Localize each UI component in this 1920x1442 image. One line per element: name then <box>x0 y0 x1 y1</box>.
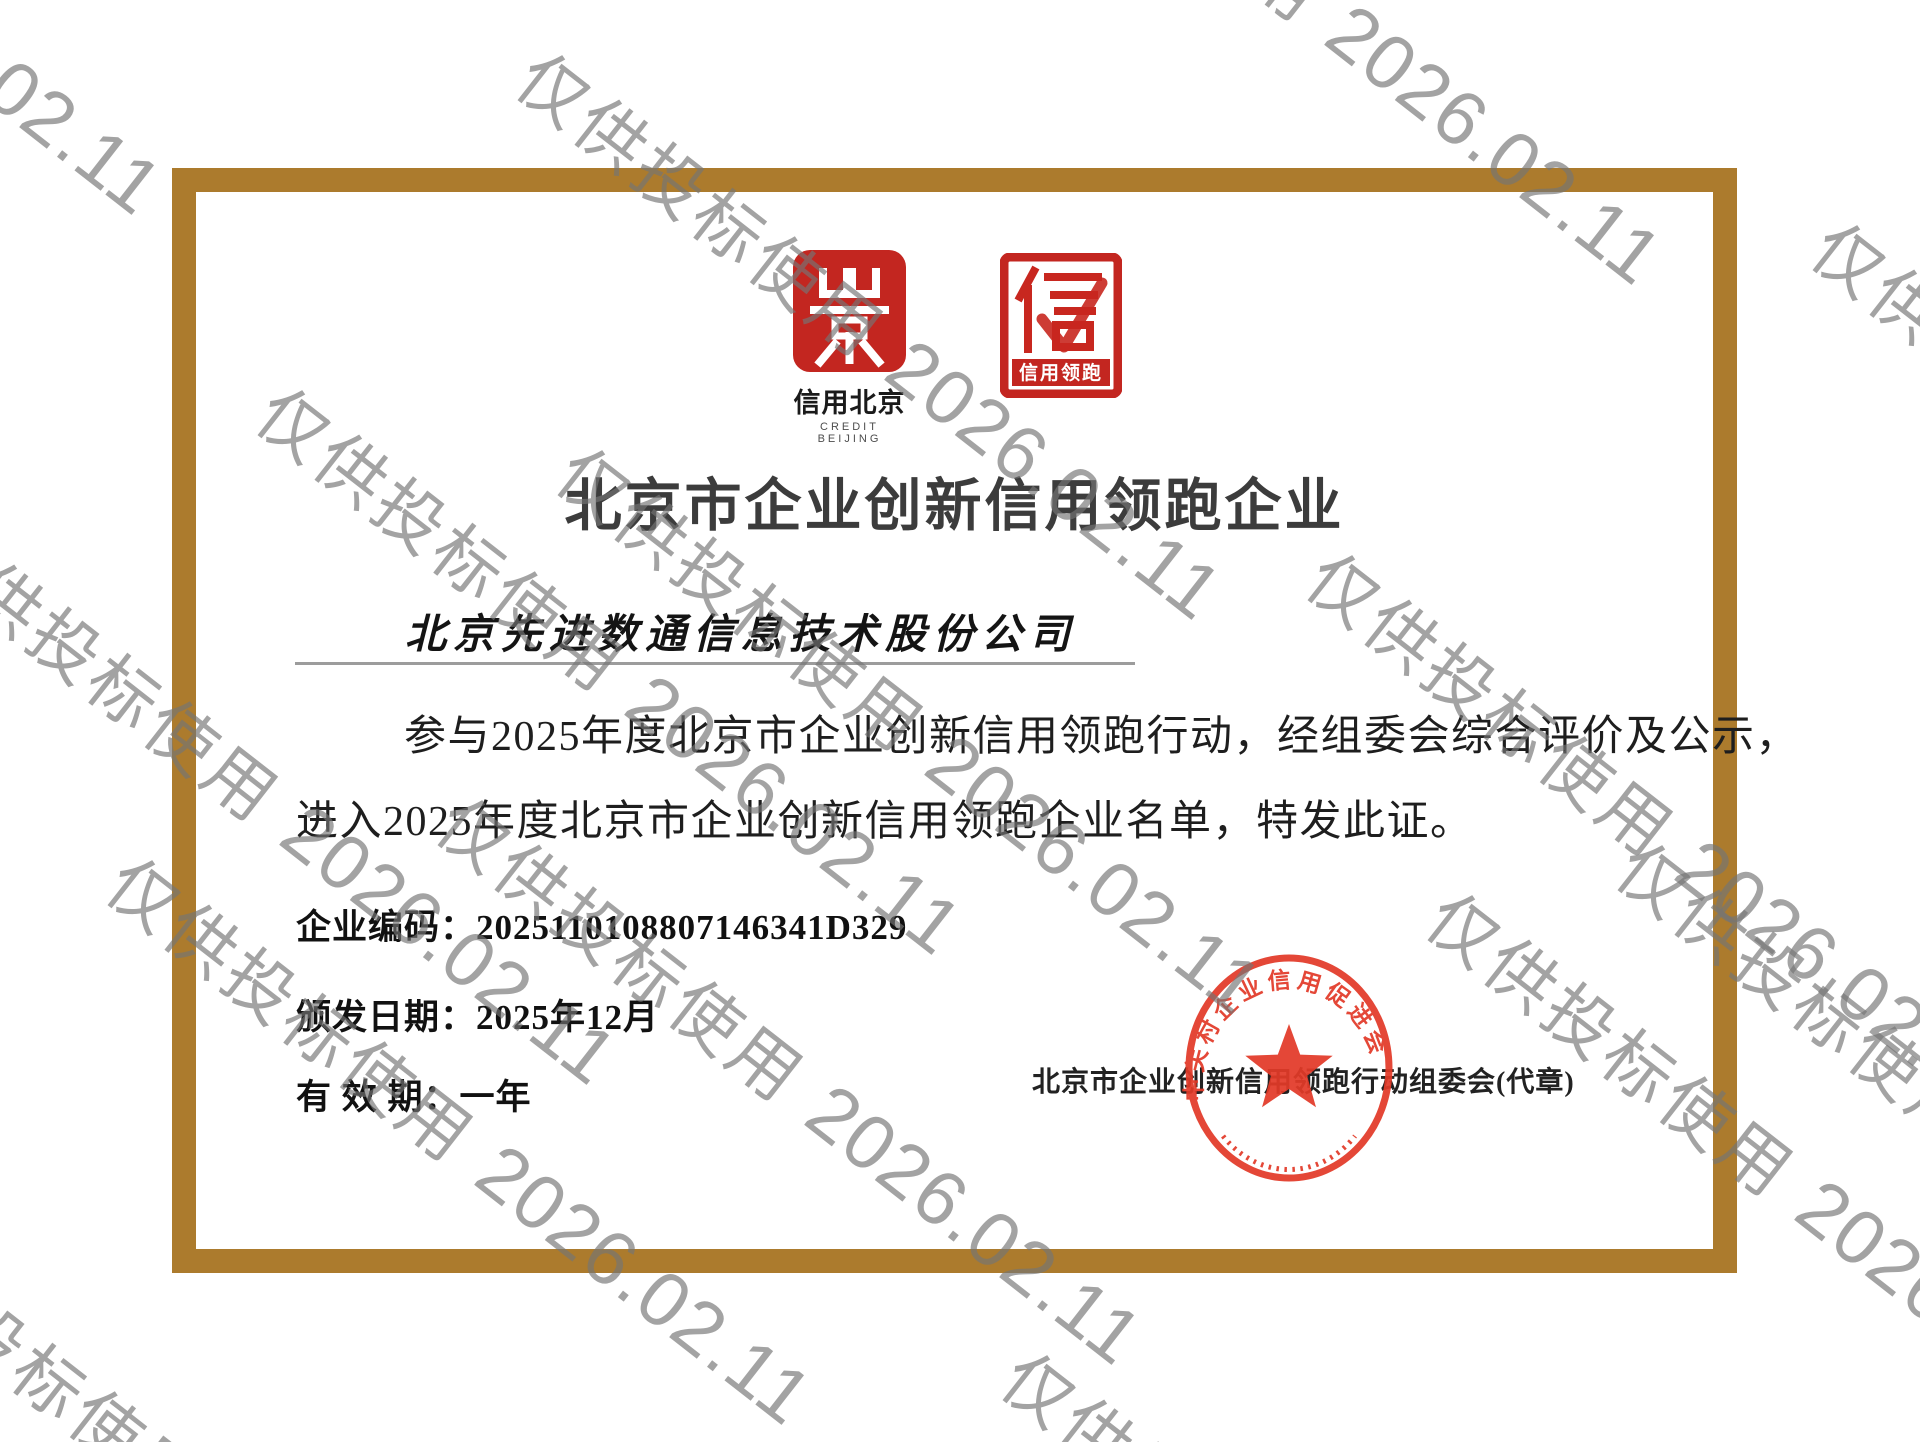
credit-leader-logo-icon: 信用领跑 <box>1000 253 1122 398</box>
credit-beijing-logo: 信用北京 CREDIT BEIJING <box>793 250 906 445</box>
body-text-line2: 进入2025年度北京市企业创新信用领跑企业名单，特发此证。 <box>296 787 1474 848</box>
field-issue-date-value: 2025年12月 <box>476 998 659 1037</box>
field-issue-date-label: 颁发日期： <box>296 998 476 1037</box>
official-seal: 中关村企业信用促进会 <box>1178 946 1400 1186</box>
field-enterprise-code-label: 企业编码： <box>296 908 476 947</box>
certificate-title: 北京市企业创新信用领跑企业 <box>172 460 1737 542</box>
field-enterprise-code-value: 2025110108807146341D329 <box>476 908 907 947</box>
seal-star-icon <box>1245 1024 1332 1107</box>
field-validity-value: 一年 <box>460 1078 532 1117</box>
watermark-text: 仅供投标使用2026.02.11 <box>1793 195 1920 809</box>
body-text-line1: 参与2025年度北京市企业创新信用领跑行动，经组委会综合评价及公示， <box>404 702 1799 763</box>
company-underline <box>295 662 1135 665</box>
company-name: 北京先进数通信息技术股份公司 <box>405 600 1077 660</box>
credit-leader-logo-label: 信用领跑 <box>1019 361 1103 384</box>
field-validity-label: 有 效 期： <box>296 1078 460 1117</box>
credit-beijing-logo-icon <box>793 250 906 372</box>
field-issue-date: 颁发日期：2025年12月 <box>296 989 659 1040</box>
field-validity: 有 效 期：一年 <box>296 1069 532 1120</box>
credit-leader-logo: 信用领跑 <box>1000 253 1122 403</box>
watermark-text: 仅供投标使用2026.02.11 <box>0 0 185 234</box>
credit-beijing-logo-label: 信用北京 <box>793 381 906 420</box>
certificate-page: 信用北京 CREDIT BEIJING 信用领跑 北京市企业创新信用领跑企业 北… <box>0 0 1920 1442</box>
credit-beijing-logo-sublabel: CREDIT BEIJING <box>793 421 906 445</box>
watermark-text: 仅供投标使用2026.02.11 <box>983 1325 1730 1442</box>
field-enterprise-code: 企业编码：2025110108807146341D329 <box>296 899 907 950</box>
